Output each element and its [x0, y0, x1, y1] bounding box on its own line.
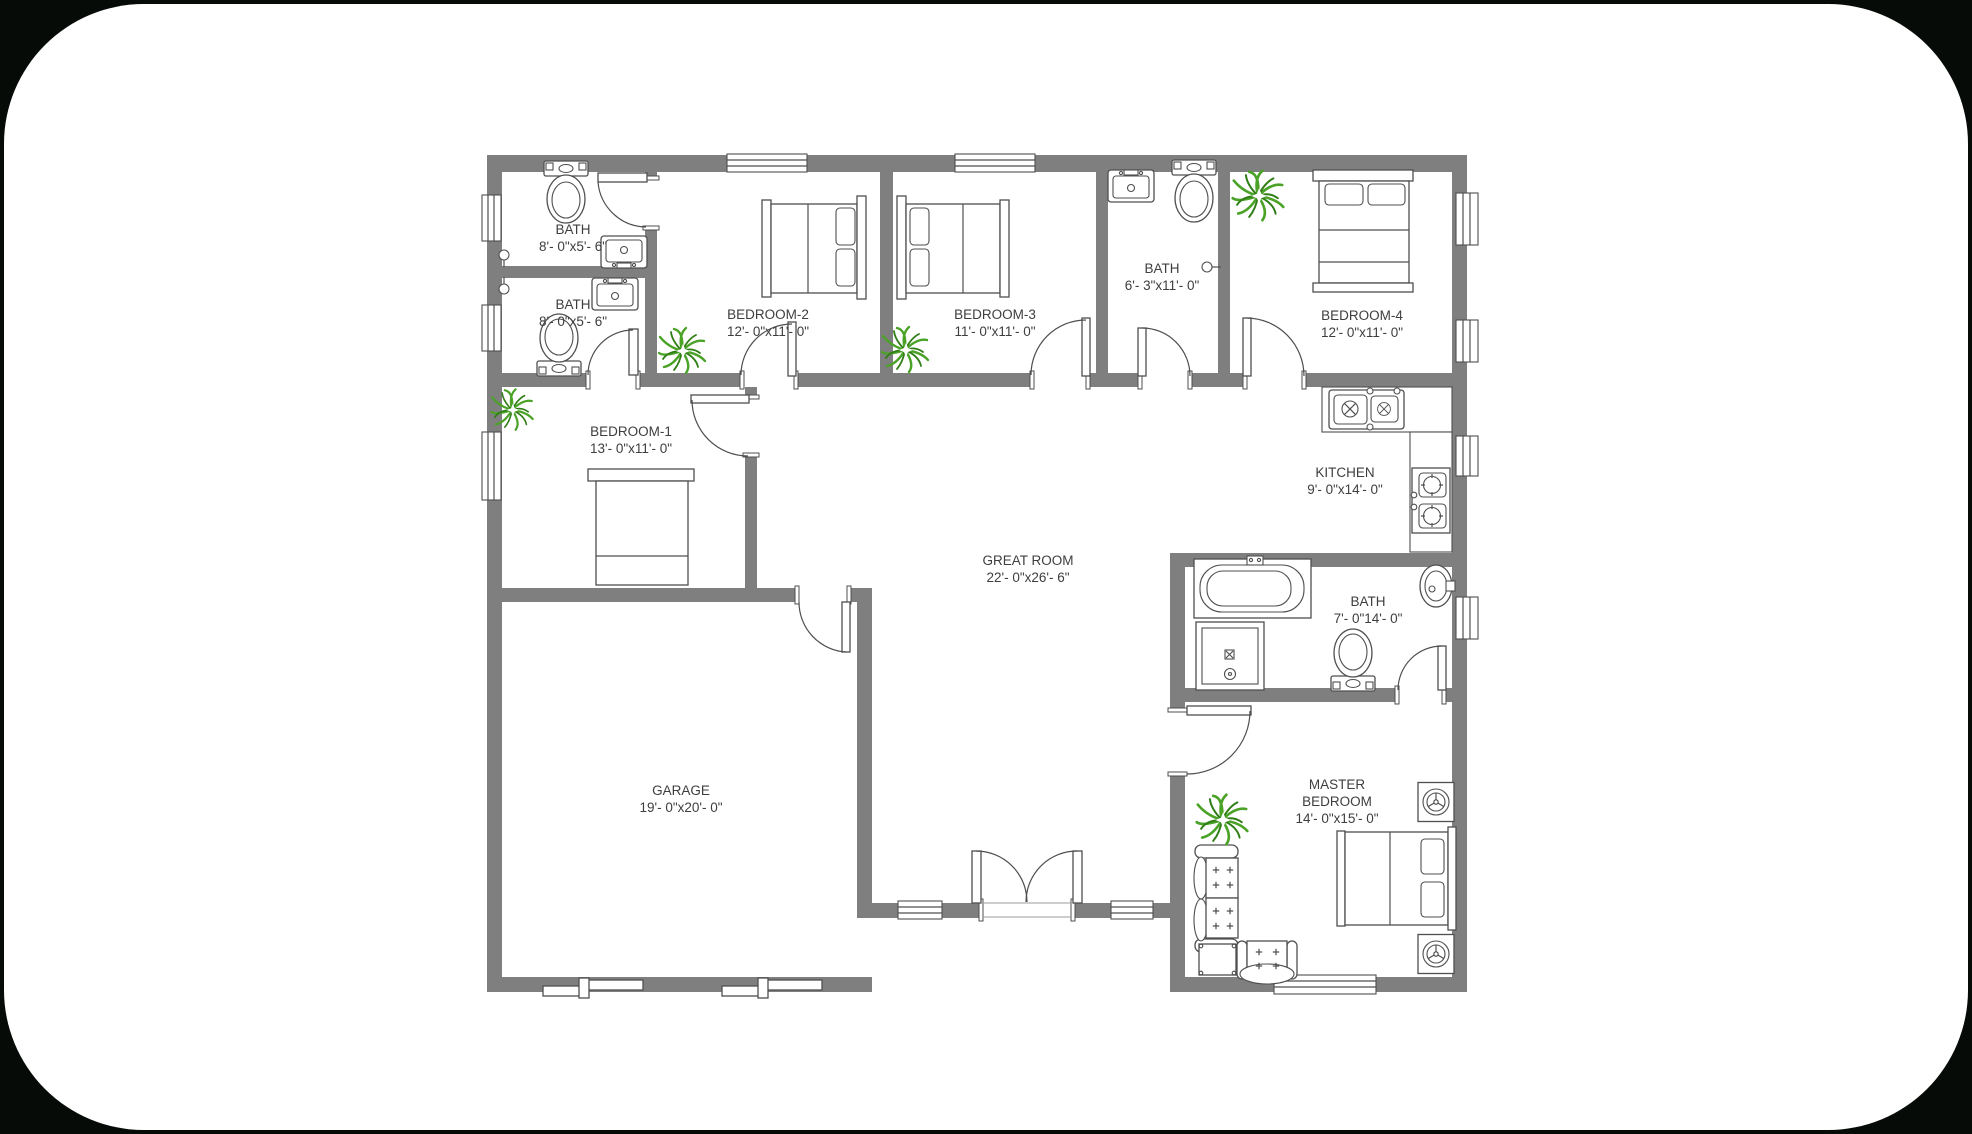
window-icon — [1456, 436, 1478, 476]
svg-text:6'- 3"x11'- 0": 6'- 3"x11'- 0" — [1125, 278, 1200, 293]
room-label-bedroom-3: BEDROOM-3 11'- 0"x11'- 0" — [954, 307, 1036, 339]
nightstand-icon — [1418, 935, 1454, 974]
svg-text:13'- 0"x11'- 0": 13'- 0"x11'- 0" — [590, 441, 672, 456]
svg-text:GREAT ROOM: GREAT ROOM — [982, 553, 1073, 568]
kitchen-sink-icon — [1329, 388, 1404, 430]
bed-icon — [762, 196, 866, 299]
room-label-bath-3: BATH 6'- 3"x11'- 0" — [1125, 261, 1200, 293]
ottoman-icon — [1199, 944, 1236, 975]
room-label-bedroom-1: BEDROOM-1 13'- 0"x11'- 0" — [590, 424, 672, 456]
door-icon — [598, 173, 647, 227]
door-icon — [1243, 318, 1304, 376]
shower-icon — [1196, 622, 1264, 690]
window-icon — [898, 901, 942, 919]
door-icon — [588, 329, 638, 375]
svg-text:7'- 0"14'- 0": 7'- 0"14'- 0" — [1334, 611, 1403, 626]
window-icon — [1456, 320, 1478, 362]
room-label-bedroom-4: BEDROOM-4 12'- 0"x11'- 0" — [1321, 308, 1403, 340]
svg-text:9'- 0"x14'- 0": 9'- 0"x14'- 0" — [1307, 482, 1383, 497]
floor-plan-drawing: BATH 8'- 0"x5'- 6" BATH 8'- 0"x5'- 6" BE… — [0, 0, 1972, 1134]
door-icon — [1138, 328, 1190, 376]
window-icon — [482, 305, 501, 351]
svg-text:12'- 0"x11'- 0": 12'- 0"x11'- 0" — [727, 324, 809, 339]
svg-text:BEDROOM-4: BEDROOM-4 — [1321, 308, 1403, 323]
room-label-garage: GARAGE 19'- 0"x20'- 0" — [639, 783, 722, 815]
svg-text:BEDROOM: BEDROOM — [1302, 794, 1372, 809]
bath-3-fixtures — [1108, 160, 1221, 272]
svg-text:8'- 0"x5'- 6": 8'- 0"x5'- 6" — [539, 239, 607, 254]
plant-icon — [659, 328, 705, 373]
sink-icon — [601, 236, 647, 268]
svg-text:BATH: BATH — [555, 297, 590, 312]
svg-text:8'- 0"x5'- 6": 8'- 0"x5'- 6" — [539, 314, 607, 329]
toilet-icon — [1331, 629, 1375, 691]
room-label-kitchen: KITCHEN 9'- 0"x14'- 0" — [1307, 465, 1383, 497]
sink-icon — [592, 278, 638, 310]
window-icon — [727, 154, 807, 172]
sink-icon — [1108, 170, 1154, 202]
svg-text:11'- 0"x11'- 0": 11'- 0"x11'- 0" — [954, 324, 1035, 339]
toilet-icon — [1172, 160, 1216, 222]
window-icon — [1111, 901, 1153, 919]
svg-text:22'- 0"x26'- 6": 22'- 0"x26'- 6" — [986, 570, 1069, 585]
svg-text:KITCHEN: KITCHEN — [1315, 465, 1374, 480]
window-icon — [1456, 597, 1478, 639]
bed-icon — [1313, 170, 1413, 292]
svg-text:19'- 0"x20'- 0": 19'- 0"x20'- 0" — [639, 800, 722, 815]
bath-4-fixtures — [1194, 556, 1455, 691]
door-icon — [1187, 706, 1251, 774]
nightstand-icon — [1418, 783, 1454, 822]
stove-icon — [1411, 468, 1450, 533]
bed-icon — [897, 196, 1009, 299]
window-icon — [482, 432, 501, 500]
svg-text:BATH: BATH — [1350, 594, 1385, 609]
sofa-icon — [1194, 845, 1238, 952]
svg-text:12'- 0"x11'- 0": 12'- 0"x11'- 0" — [1321, 325, 1403, 340]
svg-text:BEDROOM-3: BEDROOM-3 — [954, 307, 1036, 322]
svg-text:MASTER: MASTER — [1309, 777, 1366, 792]
window-icon — [1456, 193, 1478, 245]
room-label-bedroom-2: BEDROOM-2 12'- 0"x11'- 0" — [727, 307, 809, 339]
plant-icon — [1197, 795, 1248, 845]
svg-text:BATH: BATH — [1144, 261, 1179, 276]
svg-text:GARAGE: GARAGE — [652, 783, 710, 798]
door-icon — [691, 395, 749, 456]
room-label-bath-1: BATH 8'- 0"x5'- 6" — [539, 222, 607, 254]
svg-text:14'- 0"x15'- 0": 14'- 0"x15'- 0" — [1295, 811, 1378, 826]
pedestal-sink-icon — [1420, 565, 1455, 607]
toilet-icon — [544, 161, 588, 223]
window-icon — [955, 154, 1035, 172]
bathtub-icon — [1194, 556, 1311, 618]
bed-icon — [1337, 827, 1456, 930]
door-icon — [1031, 318, 1090, 376]
bed-icon — [588, 469, 694, 585]
door-icon — [799, 602, 850, 652]
armchair-icon — [1237, 941, 1297, 984]
room-label-great-room: GREAT ROOM 22'- 0"x26'- 6" — [982, 553, 1073, 585]
room-label-bath-4: BATH 7'- 0"14'- 0" — [1334, 594, 1403, 626]
svg-text:BEDROOM-2: BEDROOM-2 — [727, 307, 809, 322]
screenshot-root: { "page": { "background": "#070b07", "sh… — [0, 0, 1972, 1134]
window-icon — [482, 195, 501, 241]
svg-text:BATH: BATH — [555, 222, 590, 237]
room-label-master-bedroom: MASTER BEDROOM 14'- 0"x15'- 0" — [1295, 777, 1378, 826]
svg-text:BEDROOM-1: BEDROOM-1 — [590, 424, 672, 439]
door-icon — [1398, 646, 1446, 690]
plant-icon — [1233, 171, 1284, 221]
